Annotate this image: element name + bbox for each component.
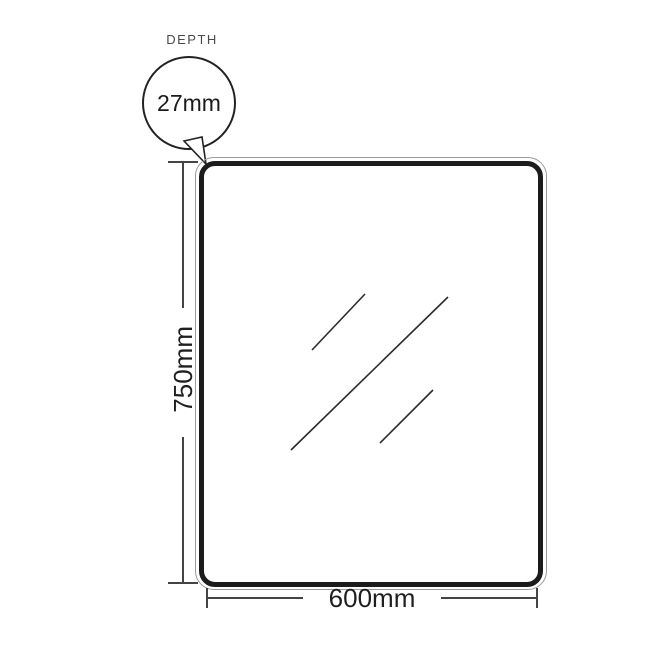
mirror-dimension-diagram: DEPTH 27mm 750mm 600mm — [0, 0, 670, 671]
height-dimension-label: 750mm — [168, 326, 199, 413]
height-dimension-upper-line — [182, 163, 184, 308]
height-dimension: 750mm — [168, 161, 198, 584]
depth-value: 27mm — [157, 90, 221, 117]
height-dimension-lower-line — [182, 437, 184, 582]
width-dimension-left-line — [208, 597, 303, 599]
height-dimension-bottom-tick — [168, 582, 198, 584]
width-dimension: 600mm — [206, 588, 538, 608]
depth-label: DEPTH — [122, 32, 262, 47]
width-dimension-label: 600mm — [329, 588, 416, 608]
width-dimension-right-tick — [536, 588, 538, 608]
mirror-body — [199, 161, 543, 587]
width-dimension-right-line — [441, 597, 536, 599]
